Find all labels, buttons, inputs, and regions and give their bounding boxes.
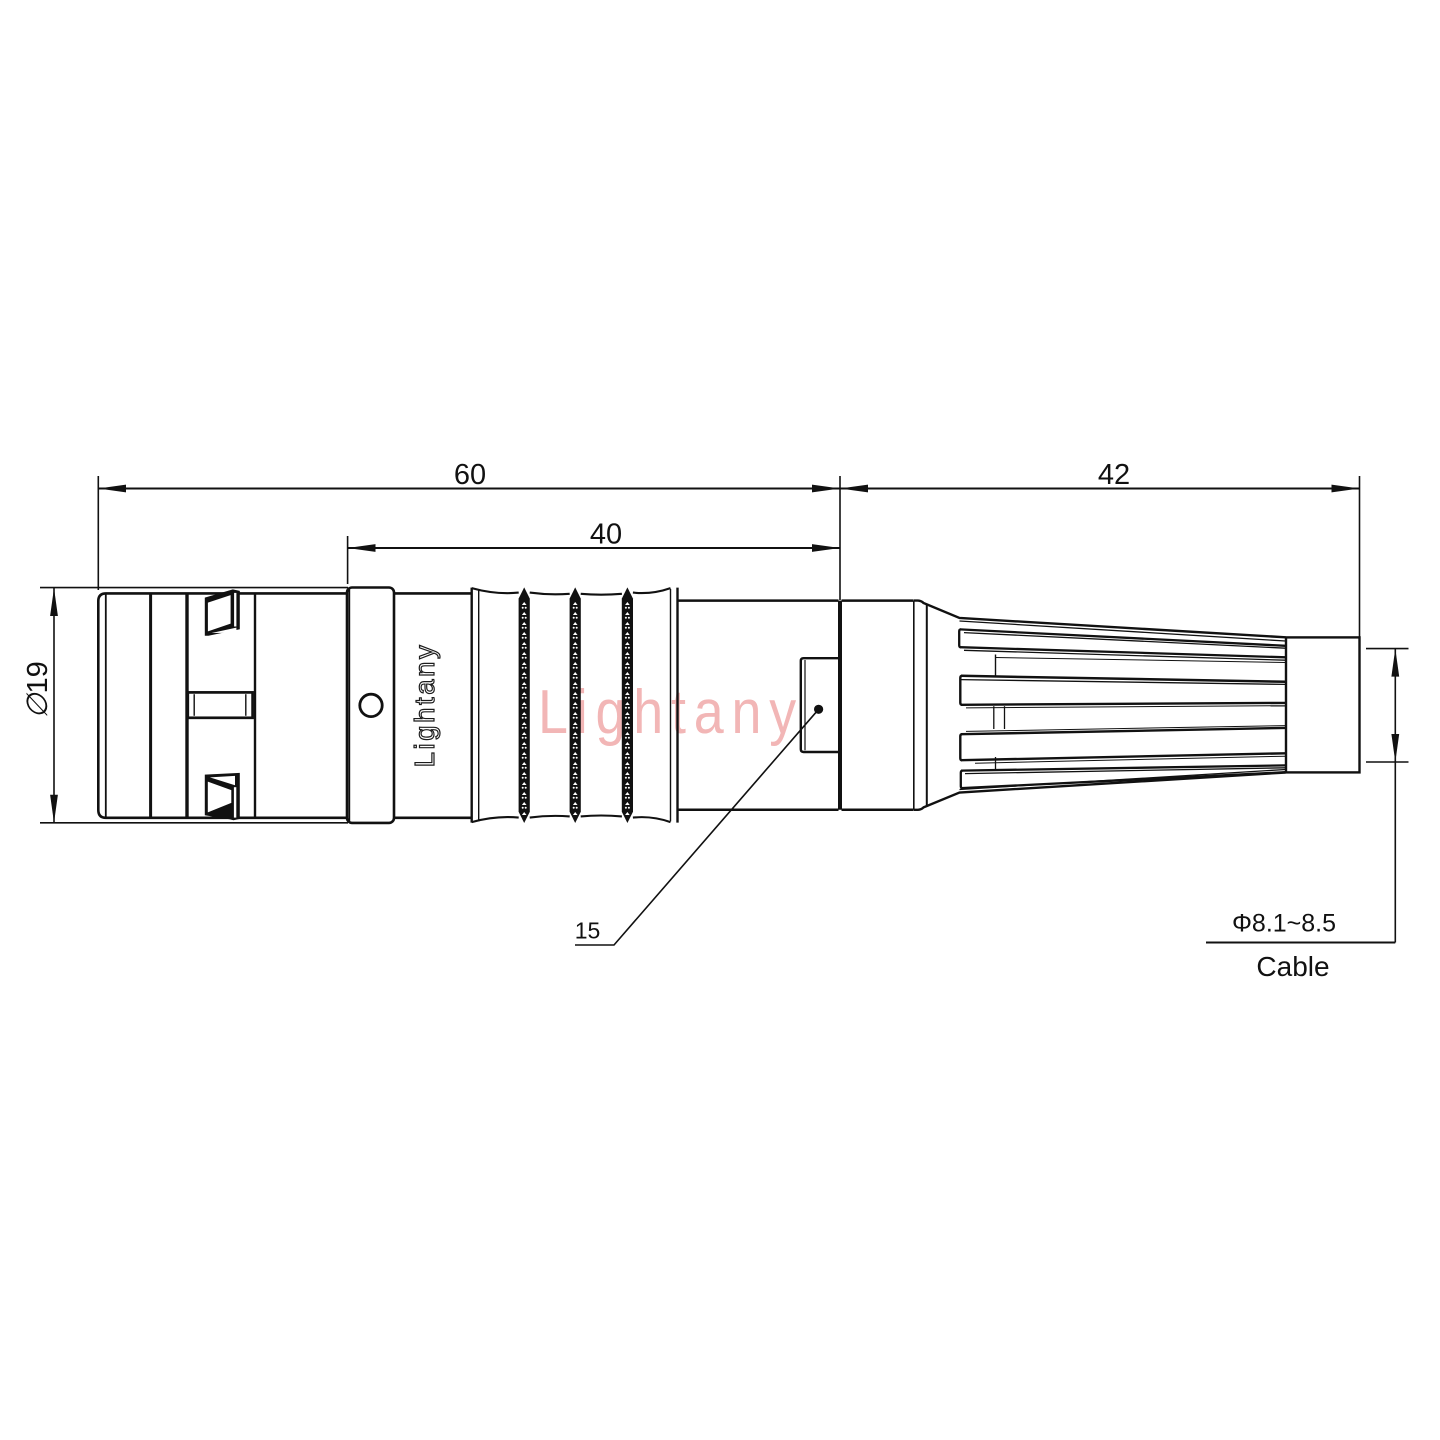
svg-text:∅19: ∅19 [22, 661, 54, 719]
svg-text:40: 40 [590, 519, 622, 551]
svg-text:Cable: Cable [1256, 951, 1329, 982]
svg-text:42: 42 [1098, 459, 1130, 491]
svg-text:15: 15 [575, 918, 601, 944]
svg-text:60: 60 [454, 459, 486, 491]
svg-text:Φ8.1~8.5: Φ8.1~8.5 [1232, 910, 1336, 938]
svg-text:Lightany: Lightany [409, 643, 440, 768]
